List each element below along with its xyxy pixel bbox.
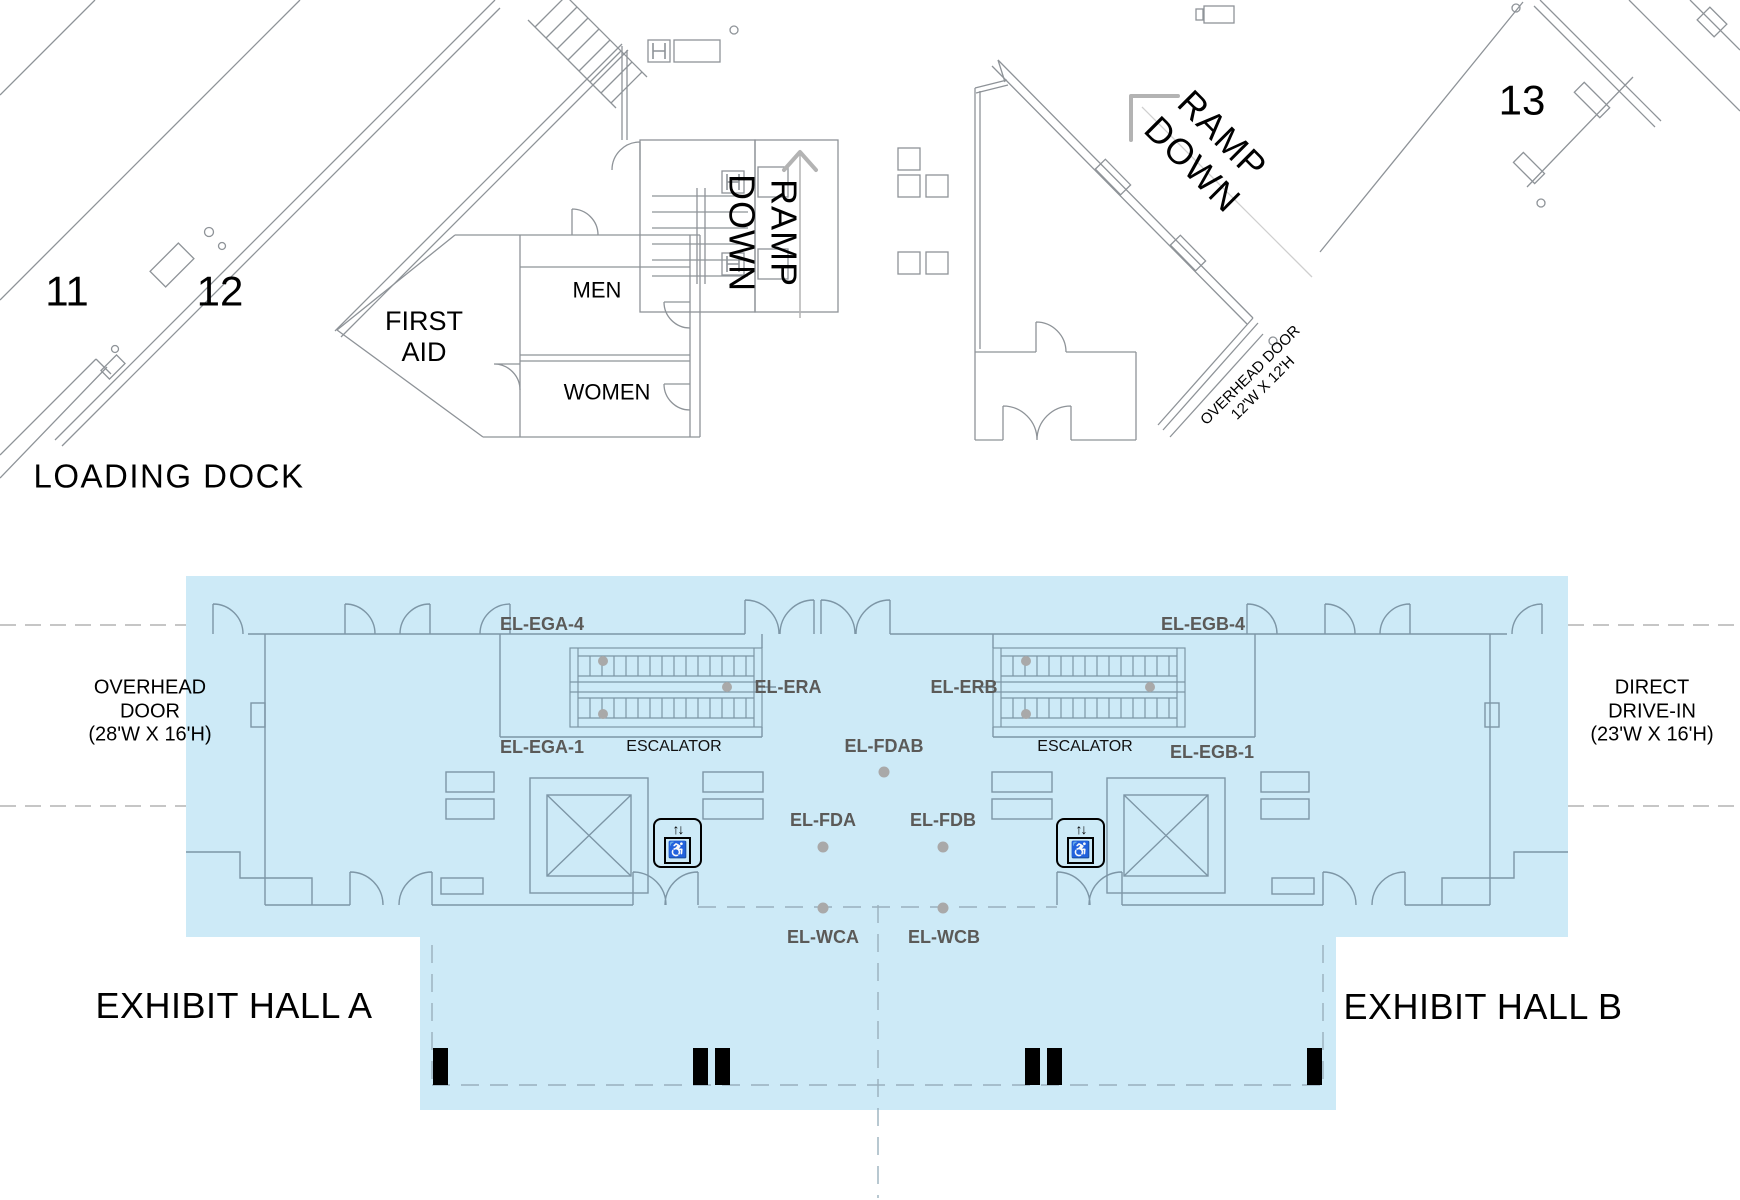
- el-wcb-label: EL-WCB: [908, 927, 980, 947]
- el-egb-1-label: EL-EGB-1: [1170, 742, 1254, 762]
- escalator-a-label: ESCALATOR: [626, 738, 721, 756]
- direct-drive-line3: (23'W X 16'H): [1590, 724, 1713, 748]
- overhead-large-line1: OVERHEAD: [88, 677, 211, 701]
- overhead-door-large-note: OVERHEAD DOOR (28'W X 16'H): [88, 677, 211, 748]
- el-egb-4-label: EL-EGB-4: [1161, 614, 1245, 634]
- direct-drive-line1: DIRECT: [1590, 677, 1713, 701]
- men-room-label: MEN: [573, 279, 622, 304]
- concourse-highlight-region: [186, 576, 1568, 1110]
- exhibit-hall-a-label: EXHIBIT HALL A: [95, 986, 372, 1026]
- first-aid-line1: FIRST: [385, 306, 463, 337]
- first-aid-line2: AID: [385, 337, 463, 368]
- elevator-updown-icon: ↑↓: [1076, 822, 1086, 836]
- women-room-label: WOMEN: [564, 381, 651, 406]
- el-ega-1-label: EL-EGA-1: [500, 737, 584, 757]
- elevator-updown-icon: ↑↓: [673, 822, 683, 836]
- el-wca-label: EL-WCA: [787, 927, 859, 947]
- el-fdab-label: EL-FDAB: [845, 736, 924, 756]
- freight-elevator-b: [1107, 778, 1225, 893]
- first-aid-label: FIRST AID: [385, 306, 463, 368]
- accessible-elevator-icon-b: ↑↓ ♿: [1056, 818, 1105, 868]
- corner-room13-walls: [1196, 0, 1740, 252]
- el-era-label: EL-ERA: [755, 677, 822, 697]
- el-fdb-label: EL-FDB: [910, 810, 976, 830]
- direct-drive-line2: DRIVE-IN: [1590, 700, 1713, 724]
- wheelchair-icon: ♿: [1067, 837, 1094, 864]
- loading-dock-label: LOADING DOCK: [33, 459, 304, 496]
- el-ega-4-label: EL-EGA-4: [500, 614, 584, 634]
- exhibit-hall-b-label: EXHIBIT HALL B: [1343, 987, 1622, 1027]
- ramp-vertical-line1: RAMP: [762, 174, 804, 292]
- el-fda-label: EL-FDA: [790, 810, 856, 830]
- ramp-down-vertical-label: RAMP DOWN: [720, 174, 805, 292]
- room-13-label: 13: [1499, 76, 1546, 123]
- floor-plan: 11 12 13 FIRST AID MEN WOMEN LOADING DOC…: [0, 0, 1740, 1200]
- overhead-large-line2: DOOR: [88, 700, 211, 724]
- accessible-elevator-icon-a: ↑↓ ♿: [653, 818, 702, 868]
- overhead-large-line3: (28'W X 16'H): [88, 724, 211, 748]
- direct-drive-in-note: DIRECT DRIVE-IN (23'W X 16'H): [1590, 677, 1713, 748]
- room-12-label: 12: [197, 267, 244, 314]
- ramp-vertical-line2: DOWN: [720, 174, 762, 292]
- room-11-label: 11: [45, 267, 89, 314]
- escalator-b-label: ESCALATOR: [1037, 738, 1132, 756]
- loading-dock-walls: [0, 0, 500, 478]
- el-erb-label: EL-ERB: [931, 677, 998, 697]
- wheelchair-icon: ♿: [664, 837, 691, 864]
